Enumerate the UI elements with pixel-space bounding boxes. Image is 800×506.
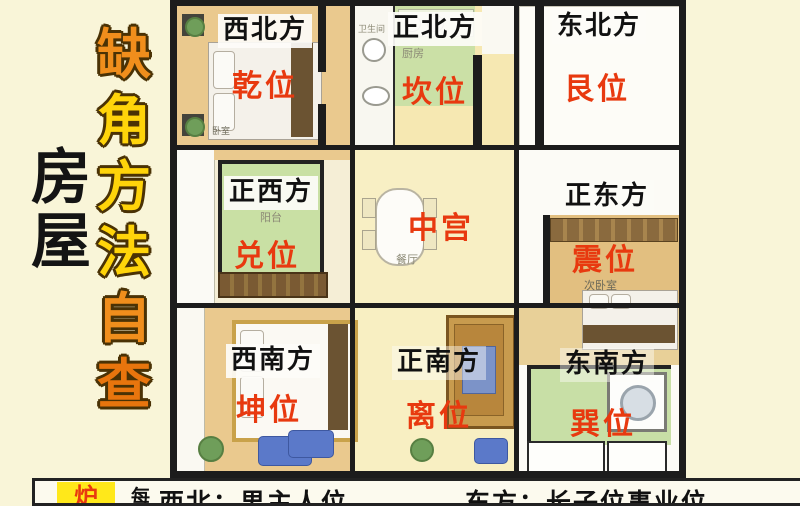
room-label-balcony: 阳台: [260, 212, 282, 223]
room-label-second-bedroom: 次卧室: [584, 280, 617, 291]
shower-tray: [527, 441, 605, 475]
sofa-cushion-blue: [474, 438, 508, 464]
room-label-bedroom: 卧室: [212, 128, 230, 137]
chair: [362, 198, 376, 218]
title-char: 法: [97, 220, 151, 286]
page: { "page": {"background": "#F9F5D8"}, "ti…: [0, 0, 800, 500]
wall-missing-corner: [535, 0, 544, 149]
direction-label-south: 正南方: [392, 346, 486, 380]
direction-label-north: 正北方: [388, 12, 482, 46]
side-title-char: 屋: [31, 210, 91, 274]
wall-left: [170, 0, 177, 478]
floorplan: 西北方 乾位 卧室 正北方 厨房 卫生间 坎位 东北方 艮位 正西方 阳台 兑位…: [170, 0, 686, 478]
kitchen-corner-white: [482, 6, 514, 54]
caption-prefix: 每: [131, 482, 150, 506]
wall-bottom: [170, 471, 686, 478]
shoe-cabinet: [218, 272, 328, 298]
plant-icon: [410, 438, 434, 462]
position-label-kun: 坤位: [236, 396, 302, 426]
position-label-kan: 坎位: [402, 78, 468, 108]
west-outside-strip: [176, 150, 215, 303]
direction-label-northeast: 东北方: [552, 10, 646, 44]
caption-text-left: 西北：男主人位: [159, 483, 348, 506]
plant-icon: [185, 17, 205, 37]
position-label-dui: 兑位: [234, 242, 300, 272]
wall-top: [170, 0, 686, 6]
plant-icon: [185, 117, 205, 137]
title-char: 查: [97, 352, 151, 418]
floor-cushions-blue: [288, 430, 334, 458]
grid-line-horizontal-2: [170, 303, 686, 308]
position-label-li: 离位: [406, 402, 472, 432]
grid-line-vertical-1: [350, 0, 355, 478]
grid-line-horizontal-1: [170, 145, 686, 150]
position-label-gen: 艮位: [564, 75, 630, 105]
sink-icon: [362, 38, 386, 62]
direction-label-southwest: 西南方: [226, 344, 320, 378]
side-title-vertical: 房 屋: [28, 146, 94, 274]
title-char: 自: [97, 286, 151, 352]
direction-label-southeast: 东南方: [560, 348, 654, 382]
room-label-dining: 餐厅: [396, 254, 418, 265]
direction-label-northwest: 西北方: [218, 14, 312, 48]
position-label-zhonggong: 中宫: [408, 214, 474, 244]
chair: [362, 230, 376, 250]
title-char: 缺: [97, 22, 151, 88]
shower-tray-2: [607, 441, 667, 475]
toilet-icon: [362, 86, 390, 106]
wall-east-bedroom: [543, 215, 550, 303]
position-label-zhen: 震位: [572, 246, 638, 276]
plant-icon: [198, 436, 224, 462]
caption-text-right: 东方：长子位事业位: [465, 483, 708, 506]
bed-east: [582, 290, 678, 350]
room-label-kitchen: 厨房: [402, 48, 424, 59]
position-label-xun: 巽位: [570, 410, 636, 440]
grid-line-vertical-2: [514, 0, 519, 478]
west-top-strip: [214, 150, 350, 160]
side-title-char: 房: [31, 146, 91, 210]
title-char: 角: [97, 88, 151, 154]
room-label-bathroom: 卫生间: [358, 26, 385, 35]
caption-bar: 炉 每 西北：男主人位 东方：长子位事业位: [32, 478, 800, 506]
direction-label-east: 正东方: [560, 180, 654, 214]
wall-kitchen-east: [473, 55, 482, 145]
main-title-vertical: 缺 角 方 法 自 查: [90, 22, 158, 418]
direction-label-west: 正西方: [224, 176, 318, 210]
position-label-qian: 乾位: [232, 72, 298, 102]
wall-nw-bedroom-lower: [318, 104, 326, 145]
dresser: [550, 218, 678, 242]
wall-nw-bedroom-upper: [318, 6, 326, 72]
caption-badge: 炉: [57, 482, 115, 506]
title-char: 方: [97, 154, 151, 220]
wall-right: [679, 0, 686, 478]
